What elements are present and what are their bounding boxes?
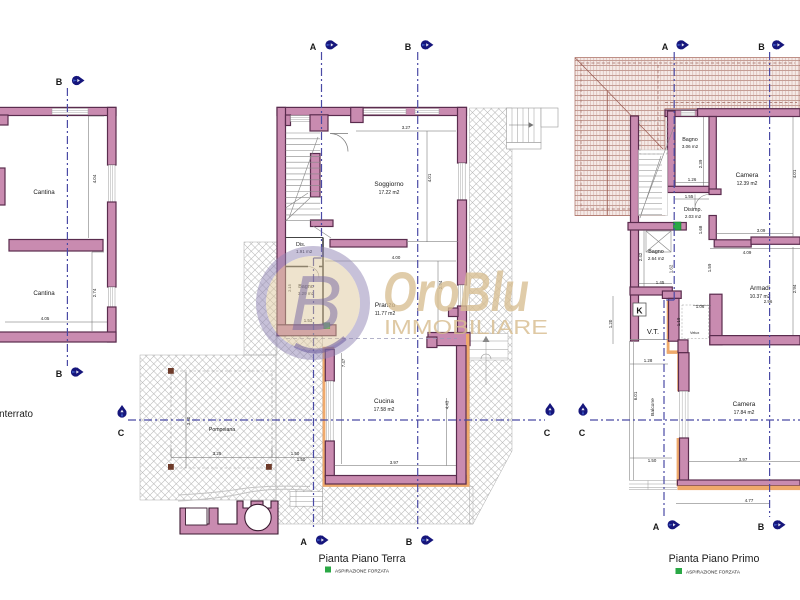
svg-text:Pompeiana: Pompeiana [209, 427, 235, 433]
svg-text:Balcone: Balcone [650, 398, 656, 416]
svg-text:Bagno: Bagno [648, 249, 664, 255]
svg-text:1.06: 1.06 [696, 304, 705, 309]
svg-text:1.20: 1.20 [608, 319, 613, 328]
svg-text:Disimp.: Disimp. [684, 207, 702, 213]
svg-text:A: A [310, 42, 317, 52]
svg-text:1.68: 1.68 [698, 225, 703, 234]
svg-text:V.T.: V.T. [647, 327, 659, 336]
svg-text:A: A [300, 537, 307, 547]
svg-text:2.42: 2.42 [638, 252, 643, 261]
svg-text:Camera: Camera [736, 172, 759, 179]
svg-text:B: B [290, 259, 342, 347]
svg-text:3.09: 3.09 [757, 228, 766, 233]
svg-text:Cantina: Cantina [33, 189, 55, 196]
svg-text:1.50: 1.50 [297, 457, 306, 462]
svg-text:4.77: 4.77 [745, 498, 754, 503]
svg-text:A: A [662, 42, 669, 52]
svg-text:1.28: 1.28 [644, 358, 653, 363]
svg-text:17.84 m2: 17.84 m2 [734, 410, 755, 416]
svg-text:4.09: 4.09 [743, 250, 752, 255]
svg-text:3.97: 3.97 [390, 460, 399, 465]
svg-text:Camera: Camera [733, 401, 756, 408]
svg-text:3.25: 3.25 [213, 451, 222, 456]
svg-text:4.43: 4.43 [445, 400, 450, 409]
svg-text:2.74: 2.74 [92, 288, 97, 297]
svg-text:B: B [406, 537, 413, 547]
svg-text:Cucina: Cucina [374, 398, 394, 405]
svg-text:A: A [653, 522, 660, 532]
svg-text:2.39: 2.39 [698, 159, 703, 168]
svg-text:1.50: 1.50 [648, 458, 657, 463]
svg-text:C: C [118, 428, 125, 438]
svg-text:4.01: 4.01 [427, 173, 432, 182]
svg-text:interrato: interrato [0, 409, 33, 420]
svg-text:B: B [405, 42, 412, 52]
svg-text:17.22 m2: 17.22 m2 [379, 190, 400, 196]
svg-text:Pianta Piano Terra: Pianta Piano Terra [319, 553, 406, 565]
svg-text:2.64 m2: 2.64 m2 [648, 256, 665, 261]
svg-text:12.39 m2: 12.39 m2 [737, 181, 758, 187]
svg-text:4.05: 4.05 [41, 316, 50, 321]
svg-text:C: C [579, 428, 586, 438]
svg-text:B: B [758, 42, 765, 52]
svg-text:6.01: 6.01 [633, 391, 638, 400]
svg-text:ASPIRAZIONE FORZATA: ASPIRAZIONE FORZATA [335, 568, 390, 573]
svg-text:B: B [758, 522, 765, 532]
svg-text:Bagno: Bagno [682, 137, 698, 143]
svg-text:3.27: 3.27 [402, 125, 411, 130]
svg-text:IMMOBILIARE: IMMOBILIARE [384, 316, 548, 339]
svg-text:Velux: Velux [690, 331, 699, 335]
svg-text:Pianta Piano Primo: Pianta Piano Primo [669, 553, 760, 565]
svg-text:3.40: 3.40 [186, 416, 191, 425]
svg-text:1.19: 1.19 [676, 317, 681, 326]
svg-text:OroBlu: OroBlu [383, 260, 529, 323]
svg-text:1.59: 1.59 [707, 263, 712, 272]
svg-text:1.26: 1.26 [688, 177, 697, 182]
svg-text:1.55: 1.55 [685, 194, 694, 199]
svg-text:Soggiorno: Soggiorno [374, 181, 404, 188]
svg-text:C: C [544, 428, 551, 438]
svg-text:3.97: 3.97 [739, 457, 748, 462]
svg-text:2.94: 2.94 [792, 284, 797, 293]
svg-text:1.62: 1.62 [669, 264, 674, 273]
svg-text:B: B [56, 369, 63, 379]
svg-text:2.96: 2.96 [764, 299, 773, 304]
svg-text:B: B [56, 77, 63, 87]
svg-text:17.58 m2: 17.58 m2 [374, 407, 395, 413]
svg-text:4.01: 4.01 [792, 169, 797, 178]
svg-text:Armadi: Armadi [750, 285, 770, 292]
svg-text:7.47: 7.47 [341, 358, 346, 367]
svg-text:ASPIRAZIONE FORZATA: ASPIRAZIONE FORZATA [686, 570, 741, 575]
svg-text:4.04: 4.04 [92, 174, 97, 183]
svg-text:1.45: 1.45 [656, 280, 665, 285]
svg-text:1.50: 1.50 [291, 451, 300, 456]
svg-text:2.03 m2: 2.03 m2 [685, 214, 702, 219]
svg-text:Cantina: Cantina [33, 290, 55, 297]
svg-text:3.06 m2: 3.06 m2 [682, 144, 699, 149]
svg-text:K: K [636, 306, 643, 316]
